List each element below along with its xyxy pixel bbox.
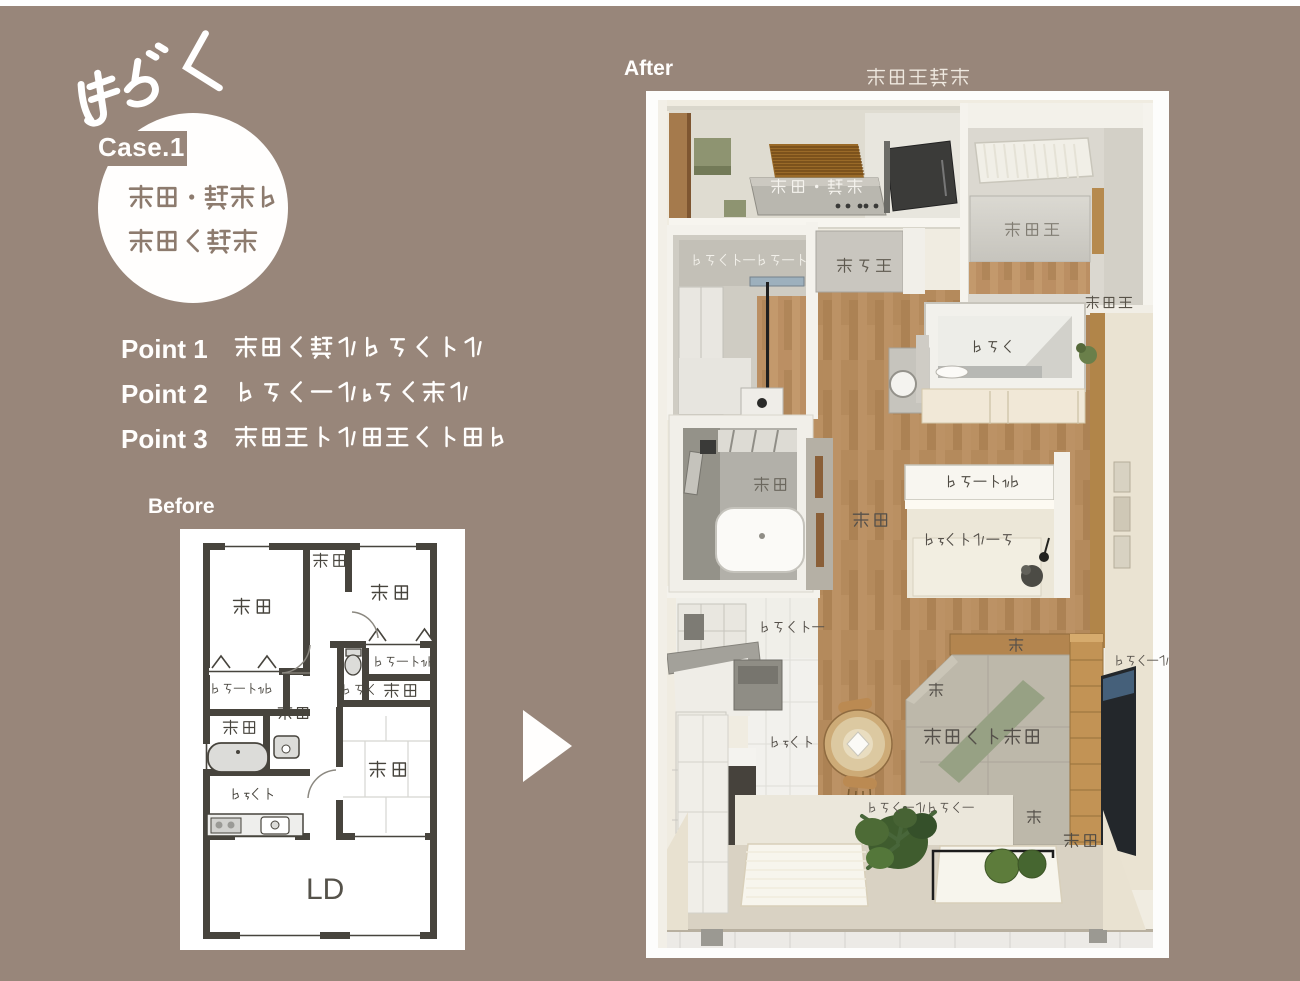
svg-text:LD: LD (306, 873, 344, 906)
